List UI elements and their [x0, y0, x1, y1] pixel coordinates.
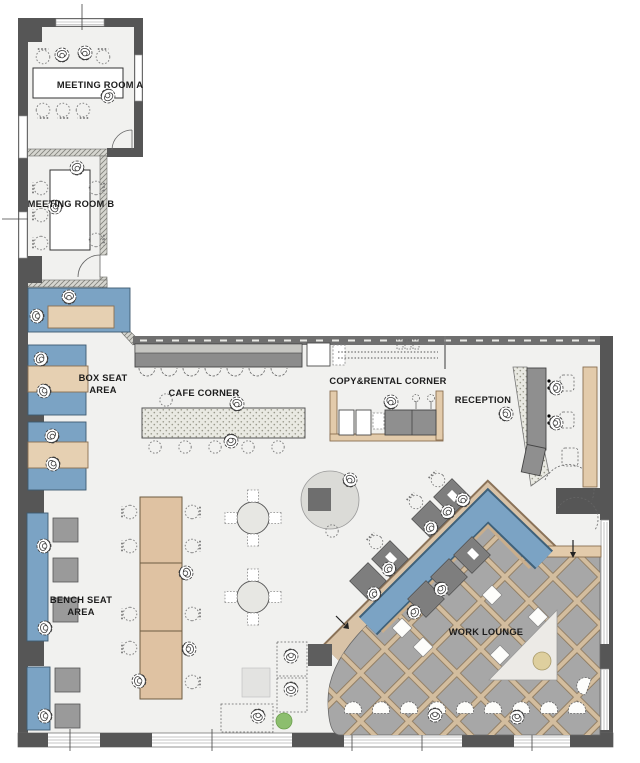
work-lounge-label: WORK LOUNGE — [449, 627, 524, 637]
meeting-room-a-label: MEETING ROOM A — [57, 80, 143, 90]
bench-seat-area-label: BENCH SEAT — [50, 595, 112, 605]
copy-rental-corner-label: COPY&RENTAL CORNER — [329, 376, 446, 386]
cafe-corner-label: CAFE CORNER — [169, 388, 240, 398]
floor-plan-drawing: MEETING ROOM A MEETING ROOM B BOX SEAT A… — [0, 0, 640, 763]
plant — [276, 713, 292, 729]
reception-label: RECEPTION — [455, 395, 512, 405]
bench-seat-area-label2: AREA — [67, 607, 94, 617]
box-seat-area-label: BOX SEAT — [79, 373, 128, 383]
meeting-room-b-label: MEETING ROOM B — [28, 199, 115, 209]
box-seat-area-label2: AREA — [89, 385, 116, 395]
office-floor-plan: MEETING ROOM A MEETING ROOM B BOX SEAT A… — [0, 0, 640, 763]
